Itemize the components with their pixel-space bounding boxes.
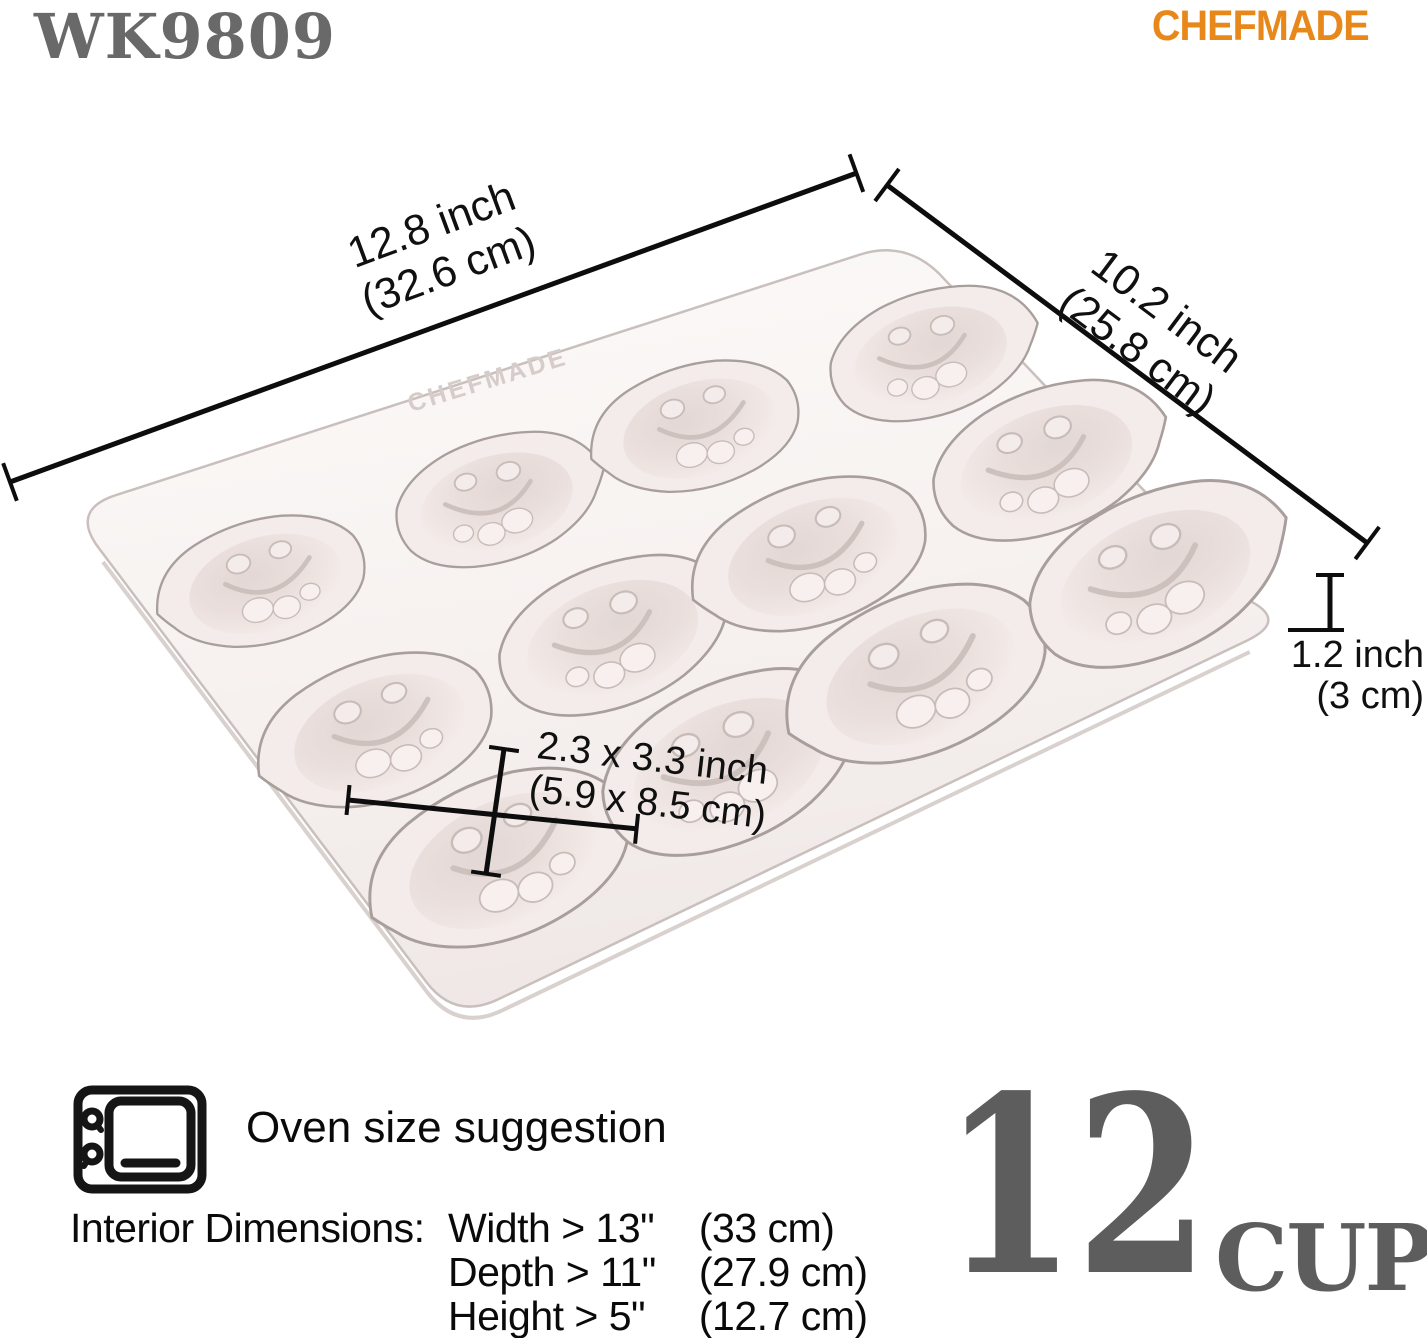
interior-height-metric: (12.7 cm) <box>699 1293 868 1338</box>
interior-dimension-row: Width > 13" (33 cm) <box>448 1206 868 1250</box>
interior-height-value: Height > 5" <box>448 1294 688 1338</box>
oven-size-title: Oven size suggestion <box>246 1103 667 1153</box>
interior-dimensions-block: Interior Dimensions: Width > 13" (33 cm)… <box>70 1206 868 1338</box>
product-dimension-image: WK9809 CHEFMADE <box>0 0 1427 1338</box>
interior-width-value: Width > 13" <box>448 1206 688 1250</box>
interior-depth-value: Depth > 11" <box>448 1250 688 1294</box>
capacity-unit: CUP <box>1215 1212 1427 1304</box>
interior-dimension-row: Height > 5" (12.7 cm) <box>448 1294 868 1338</box>
capacity-number: 12 <box>943 1064 1209 1309</box>
interior-depth-metric: (27.9 cm) <box>699 1249 868 1295</box>
oven-icon <box>73 1085 207 1195</box>
height-inches: 1.2 inch <box>1291 635 1424 676</box>
interior-dimension-row: Depth > 11" (27.9 cm) <box>448 1250 868 1294</box>
height-dimension-line <box>1288 575 1344 630</box>
height-dimension-label: 1.2 inch (3 cm) <box>1291 635 1424 717</box>
interior-dimensions-label: Interior Dimensions: <box>70 1206 448 1338</box>
interior-dimensions-list: Width > 13" (33 cm) Depth > 11" (27.9 cm… <box>448 1206 868 1338</box>
interior-width-metric: (33 cm) <box>699 1205 834 1251</box>
height-metric: (3 cm) <box>1291 676 1424 717</box>
capacity-block: 12 CUP <box>910 1064 1410 1334</box>
